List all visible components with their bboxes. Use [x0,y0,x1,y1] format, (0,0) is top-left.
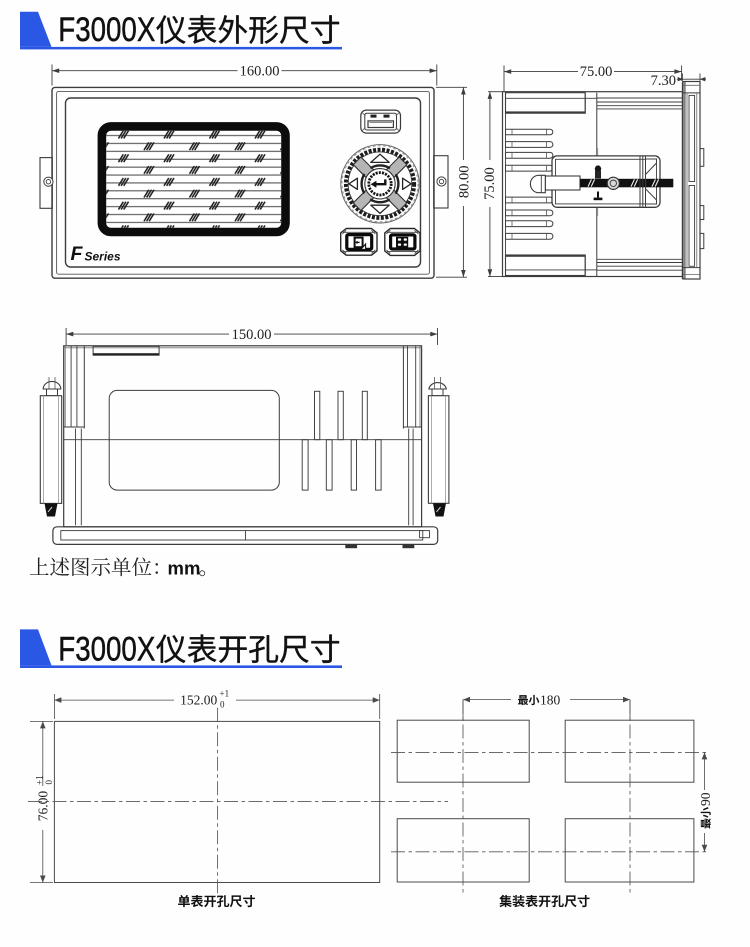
svg-text:75.00: 75.00 [580,64,613,80]
svg-text:F3000X: F3000X [58,630,155,668]
svg-text:180: 180 [540,692,561,707]
svg-text:+1: +1 [220,689,230,699]
svg-text:80.00: 80.00 [456,165,472,198]
svg-text:76.00: 76.00 [35,791,50,822]
svg-text:F: F [71,243,84,265]
svg-text:F3000X: F3000X [58,11,155,49]
svg-text:7.30: 7.30 [651,73,676,89]
svg-text:mm: mm [168,558,201,579]
svg-text:Series: Series [85,250,121,264]
svg-text:90: 90 [698,792,713,806]
svg-text:75.00: 75.00 [482,167,498,200]
svg-text:150.00: 150.00 [232,327,272,343]
svg-text:0: 0 [44,780,54,785]
svg-text:0: 0 [220,700,225,710]
svg-text:+1: +1 [34,775,44,785]
svg-text:160.00: 160.00 [240,64,280,80]
svg-text:152.00: 152.00 [180,692,217,707]
